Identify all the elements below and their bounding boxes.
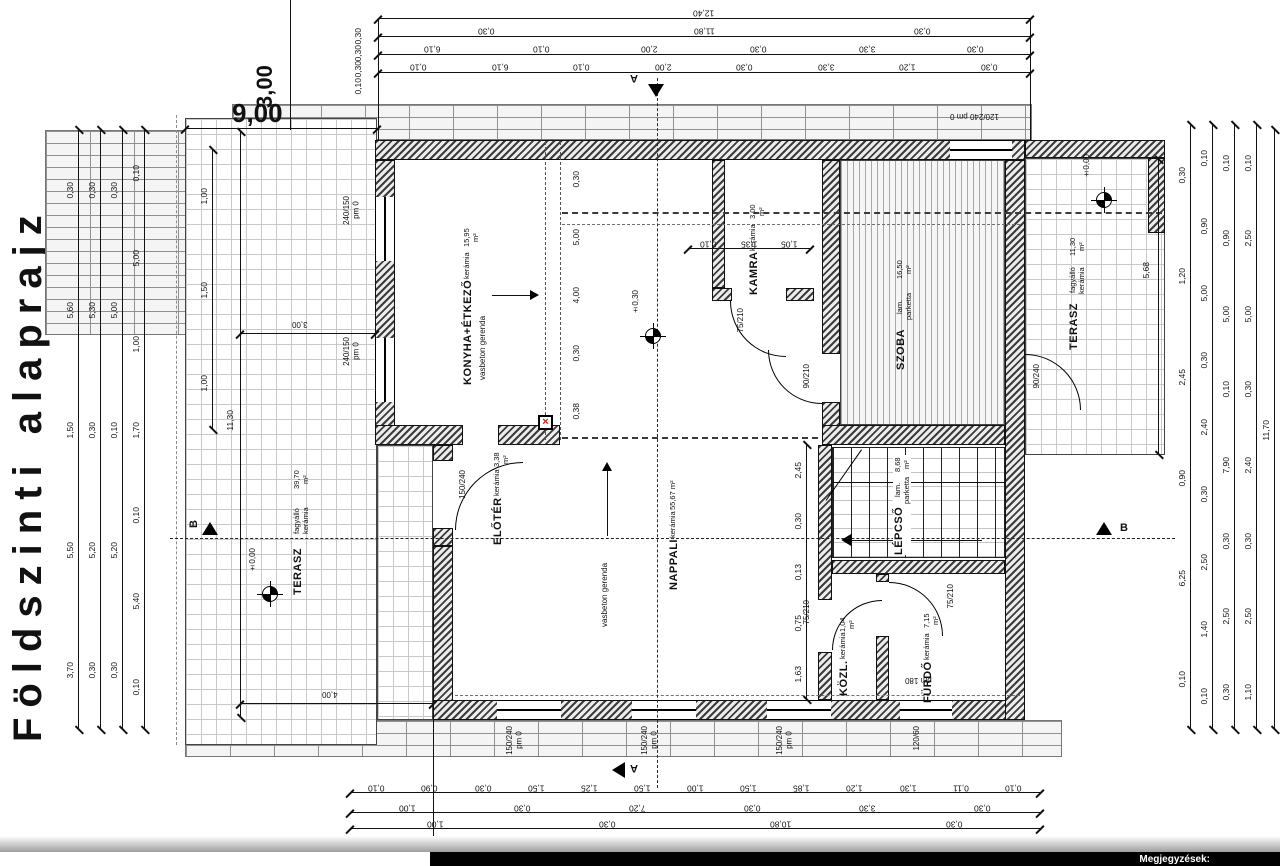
terrace-right-top-wall xyxy=(1025,140,1165,158)
dim-chain-bottom-3: 1,000,3010,800,30 xyxy=(350,816,1040,828)
dim-chain-top-corner: 0,300,300,300,10 xyxy=(352,28,364,94)
column-marker: × xyxy=(538,415,553,430)
dim-value: 0,10 xyxy=(1244,155,1253,172)
dim-value: 2,50 xyxy=(1244,608,1253,625)
dim-line-terrace-bottom xyxy=(240,703,433,704)
dim-value: 1,25 xyxy=(581,784,598,793)
dim-value: 3,30 xyxy=(818,63,835,72)
dim-chain-left-2: 0,305,300,305,200,30 xyxy=(86,130,98,730)
dim-line xyxy=(378,54,1030,55)
dim-value: 1,00 xyxy=(200,188,209,205)
window-label-top: 120/240 pm 0 xyxy=(950,112,999,121)
terrace-right-floor xyxy=(1025,158,1165,455)
dim-chain-right-3: 0,100,905,000,107,900,302,500,30 xyxy=(1220,125,1232,730)
room-label-terasz-right: TERASZ fagyálló kerámia 11,30 m² xyxy=(1068,235,1086,350)
section-marker-b-left-icon xyxy=(202,522,218,535)
dim-value: 11,80 xyxy=(694,27,715,36)
room-floor: fagyálló kerámia xyxy=(1068,259,1086,302)
dim-value: 1,05 xyxy=(781,240,798,249)
room-area: 11,30 m² xyxy=(1068,235,1086,258)
section-line-a xyxy=(657,78,658,788)
dim-value: 0,30 xyxy=(514,804,531,813)
dim-value: 12,40 xyxy=(693,9,714,18)
dim-value: 0,30 xyxy=(572,345,581,362)
dim-value: 11,70 xyxy=(1262,420,1271,441)
door-arc-szoba-left xyxy=(768,350,822,404)
room-label-furdo: FÜRDŐ kerámia 7,15 m² xyxy=(922,608,940,703)
door-label-szoba-left: 90/210 xyxy=(802,364,811,388)
room-name: KAMRA xyxy=(748,252,766,295)
dim-line-terrace-length xyxy=(240,132,241,718)
beam-arrow-head-nappali xyxy=(602,462,612,471)
dim-value: 0,30 xyxy=(736,63,753,72)
dim-value: 10,80 xyxy=(770,820,791,829)
dim-chain-right-2: 0,100,905,000,302,400,302,501,400,10 xyxy=(1198,125,1210,730)
dim-value: 5,00 xyxy=(572,229,581,246)
dim-value: 0,30 xyxy=(1244,381,1253,398)
stairs-direction-arrow xyxy=(841,534,851,547)
level-terrace-label: ±0,00 xyxy=(248,548,257,573)
dim-value: 0,13 xyxy=(794,564,803,581)
dim-value: 1,00 xyxy=(200,375,209,392)
eloter-wall-stub-top xyxy=(433,445,453,461)
dim-value: 1,35 xyxy=(741,240,758,249)
dim-value: 0,30 xyxy=(1200,352,1209,369)
overhang-dashed-2 xyxy=(562,224,1020,225)
footer-gradient xyxy=(0,836,1280,852)
room-name: ELŐTÉR xyxy=(492,497,510,545)
dim-line xyxy=(144,130,145,730)
dim-value: 0,30 xyxy=(354,28,363,45)
window-parapet: pm 0 xyxy=(352,196,362,225)
beam-dashed-line-2 xyxy=(560,142,561,440)
dim-value: 2,50 xyxy=(1244,230,1253,247)
room-name: TERASZ xyxy=(1068,303,1086,350)
dim-value: 0,30 xyxy=(572,171,581,188)
dim-value: 0,30 xyxy=(1244,533,1253,550)
room-name: LÉPCSŐ xyxy=(893,507,911,555)
dim-value: 0,90 xyxy=(1178,470,1187,487)
dim-value: 5,40 xyxy=(132,593,141,610)
room-floor: lam. parketta xyxy=(893,474,911,505)
dim-line xyxy=(100,130,101,730)
dim-value: 2,00 xyxy=(641,45,658,54)
szoba-floor xyxy=(840,160,1005,425)
dim-value: 1,50 xyxy=(740,784,757,793)
room-label-terasz-left: TERASZ fagyálló kerámia 39,70 m² xyxy=(292,465,310,595)
dim-line xyxy=(1256,125,1257,730)
eloter-wall-stub-bottom xyxy=(433,528,453,546)
dim-value: 0,30 xyxy=(1222,533,1231,550)
dim-value: 0,30 xyxy=(744,804,761,813)
dim-chain-right-1: 0,301,202,450,906,250,10 xyxy=(1176,125,1188,730)
window-label-bottom-1: 150/240 pm 0 xyxy=(505,726,524,755)
room-label-konyha: KONYHA+ÉTKEZŐ kerámia 15,95 m² xyxy=(462,225,480,385)
dim-line xyxy=(1274,130,1275,730)
extension-line xyxy=(1030,18,1031,140)
window-konyha-2 xyxy=(375,338,395,402)
room-area: 8,68 m² xyxy=(893,455,911,473)
window-parapet: pm 0 xyxy=(352,337,362,366)
dim-value: 1,00 xyxy=(687,784,704,793)
room-label-eloter: ELŐTÉR kerámia 3,38 m² xyxy=(492,450,510,545)
dim-value: 0,10 xyxy=(410,63,427,72)
window-parapet: pm 0 xyxy=(950,112,968,121)
dim-line xyxy=(1212,125,1213,730)
dim-value: 0,30 xyxy=(974,804,991,813)
dim-chain-left-4: 0,105,001,001,700,105,400,10 xyxy=(130,130,142,730)
dim-value: 1,63 xyxy=(794,666,803,683)
dim-value: 0,10 xyxy=(368,784,385,793)
room-name: TERASZ xyxy=(292,548,310,595)
window-parapet: pm 0 xyxy=(515,726,525,755)
dim-value: 5,00 xyxy=(1244,306,1253,323)
dim-value: 0,30 xyxy=(110,662,119,679)
room-floor: lam. parketta xyxy=(895,285,913,328)
room-area: 3,00 m² xyxy=(748,200,766,223)
room-floor: kerámia xyxy=(492,470,510,497)
room-area: 55,67 m² xyxy=(668,481,680,511)
dim-line xyxy=(350,812,1040,813)
level-terrace-right-label: ±0,00 xyxy=(1082,154,1091,179)
dim-value: 5,50 xyxy=(66,542,75,559)
dim-value: 5,30 xyxy=(88,302,97,319)
extension-line xyxy=(378,18,379,140)
dim-chain-right-5: 11,70 xyxy=(1260,130,1272,730)
dim-value: 7,20 xyxy=(629,804,646,813)
kozl-furdo-partition-a xyxy=(876,574,889,582)
dim-chain-top-4: 0,106,100,102,000,303,301,200,30 xyxy=(378,59,1030,71)
window-label-konyha-2: 240/150 pm 0 xyxy=(342,337,361,366)
window-top xyxy=(950,140,1012,160)
dim-value: 5,20 xyxy=(110,542,119,559)
dim-value: 5,00 xyxy=(1200,285,1209,302)
dim-value: 3,70 xyxy=(66,662,75,679)
dim-value: 1,30 xyxy=(900,784,917,793)
footer-bar: Megjegyzések: xyxy=(430,852,1280,866)
dim-value: 0,30 xyxy=(88,662,97,679)
dim-chain-top-1: 12,40 xyxy=(378,5,1030,17)
dim-line xyxy=(212,150,213,430)
dim-value: 0,10 xyxy=(132,507,141,524)
kamra-bottom-wall-a xyxy=(712,288,732,301)
dim-value: 0,10 xyxy=(132,165,141,182)
dim-value: 1,20 xyxy=(1178,268,1187,285)
dim-value: 4,00 xyxy=(572,287,581,304)
beam-arrow-line-nappali xyxy=(607,470,608,536)
level-interior-label: ±0,30 xyxy=(631,290,640,315)
szoba-left-wall-upper xyxy=(822,160,840,354)
window-label-furdo: 120/60 xyxy=(912,726,922,750)
room-name: KONYHA+ÉTKEZŐ xyxy=(462,280,480,385)
dim-line xyxy=(378,72,1030,73)
dim-top-offset: 3,00 xyxy=(252,36,278,108)
stairs-left-wall-upper xyxy=(818,445,832,600)
dim-value: 0,30 xyxy=(599,820,616,829)
dim-value: 0,90 xyxy=(1200,218,1209,235)
dim-value: 0,90 xyxy=(1222,230,1231,247)
dim-value: 0,30 xyxy=(1222,684,1231,701)
beam-label-nappali: vasbeton gerenda xyxy=(600,540,609,650)
footer-notes-label: Megjegyzések: xyxy=(1139,854,1210,865)
window-parapet: pm 0 xyxy=(785,726,795,755)
terrace-left-step-floor xyxy=(377,445,433,720)
dim-terrace-width: 3,00 xyxy=(292,320,308,329)
room-floor: kerámia xyxy=(838,633,856,660)
room-area: 16,50 m² xyxy=(895,255,913,284)
dim-line-terrace-width xyxy=(240,333,375,334)
dim-value: 0,30 xyxy=(88,422,97,439)
dim-value: 0,10 xyxy=(700,240,717,249)
dim-value: 1,50 xyxy=(528,784,545,793)
dim-value: 1,20 xyxy=(846,784,863,793)
dim-value: 2,45 xyxy=(1178,369,1187,386)
dim-value: 1,50 xyxy=(634,784,651,793)
dim-value: 0,10 xyxy=(1222,381,1231,398)
dim-line xyxy=(78,130,79,730)
floor-plan-canvas: Földszinti alaprajz 240/150 pm 0 240/150 xyxy=(0,0,1280,866)
dim-value: 1,00 xyxy=(427,820,444,829)
window-label-konyha-1: 240/150 pm 0 xyxy=(342,196,361,225)
dim-value: 1,40 xyxy=(1200,621,1209,638)
dim-line-top-width xyxy=(185,128,377,129)
section-marker-a-top-label: A xyxy=(630,72,638,84)
dim-value: 0,30 xyxy=(1200,486,1209,503)
room-area: 3,38 m² xyxy=(492,450,510,469)
dim-value: 5,00 xyxy=(1222,306,1231,323)
section-marker-b-right-icon xyxy=(1096,522,1112,535)
dim-value: 0,30 xyxy=(1178,167,1187,184)
window-label-bottom-3: 150/240 pm 0 xyxy=(775,726,794,755)
window-bottom-3 xyxy=(767,700,831,720)
room-floor: kerámia xyxy=(668,511,680,538)
dim-value: 6,10 xyxy=(424,45,441,54)
dim-value: 0,75 xyxy=(794,615,803,632)
dim-value: 0,10 xyxy=(132,679,141,696)
dim-value: 0,30 xyxy=(946,820,963,829)
window-konyha-1 xyxy=(375,197,395,261)
dim-value: 6,10 xyxy=(492,63,509,72)
dim-value: 0,10 xyxy=(1178,671,1187,688)
dim-value: 0,30 xyxy=(750,45,767,54)
level-marker-icon xyxy=(1096,192,1112,208)
window-size: 120/60 xyxy=(912,726,922,750)
section-marker-a-top-icon xyxy=(648,84,664,97)
dim-chain-nappali-right: 2,450,300,130,751,63 xyxy=(792,445,804,700)
dim-value: 1,10 xyxy=(1244,684,1253,701)
window-size: 150/240 xyxy=(505,726,515,755)
szoba-bottom-wall xyxy=(822,425,1005,445)
dim-value: 1,00 xyxy=(132,336,141,353)
room-floor: kerámia xyxy=(462,252,480,279)
overhang-dashed-3 xyxy=(562,437,818,439)
room-name: FÜRDŐ xyxy=(922,661,940,703)
dim-terrace-length: 11,30 xyxy=(226,410,235,431)
window-bottom-2 xyxy=(632,700,696,720)
room-name: NAPPALI xyxy=(668,539,680,590)
window-size: 240/150 xyxy=(342,196,352,225)
dim-value: 3,30 xyxy=(859,804,876,813)
beam-arrow-head-konyha xyxy=(530,290,539,300)
room-floor: fagyálló kerámia xyxy=(292,494,310,547)
dim-value: 2,40 xyxy=(1200,419,1209,436)
dim-value: 2,40 xyxy=(1244,457,1253,474)
dim-value: 0,30 xyxy=(88,182,97,199)
window-size: 240/150 xyxy=(342,337,352,366)
stairs-left-wall-lower xyxy=(818,652,832,700)
dim-value: 0,30 xyxy=(914,27,931,36)
level-marker-icon xyxy=(645,328,661,344)
extension-line xyxy=(433,720,434,848)
dim-line xyxy=(806,445,807,700)
dim-right-terrace-depth: 5,68 xyxy=(1142,262,1151,279)
dim-chain-bottom-1: 0,100,900,301,501,251,501,001,501,851,20… xyxy=(350,780,1040,792)
kamra-bottom-wall-b xyxy=(786,288,814,301)
dim-value: 5,20 xyxy=(88,542,97,559)
room-area: 7,15 m² xyxy=(922,608,940,633)
dim-value: 0,30 xyxy=(110,182,119,199)
dim-value: 0,10 xyxy=(1005,784,1022,793)
door-label-szoba-terrace: 90/240 xyxy=(1032,364,1041,388)
section-marker-b-left-label: B xyxy=(188,520,200,528)
room-area: 15,95 m² xyxy=(462,225,480,251)
level-marker-icon xyxy=(262,586,278,602)
dim-value: 0,30 xyxy=(478,27,495,36)
dim-value: 5,00 xyxy=(110,302,119,319)
dim-value: 5,60 xyxy=(66,302,75,319)
dim-value: 0,10 xyxy=(533,45,550,54)
dim-value: 1,00 xyxy=(399,804,416,813)
dim-value: 1,85 xyxy=(793,784,810,793)
dim-terrace-bottom: 4,00 xyxy=(322,690,338,699)
terrace-right-side-wall xyxy=(1148,158,1165,233)
dim-value: 0,10 xyxy=(110,422,119,439)
dim-value: 0,30 xyxy=(981,63,998,72)
section-marker-b-right-label: B xyxy=(1120,522,1128,534)
stairs-bottom-wall xyxy=(832,560,1005,574)
stairs-direction-line xyxy=(850,540,982,541)
stairs-landing-line xyxy=(832,482,1005,483)
dim-chain-bottom-2: 1,000,307,200,303,300,30 xyxy=(350,800,1040,812)
door-label-furdo: 75/210 xyxy=(946,584,955,608)
dim-line xyxy=(350,828,1040,829)
dim-value: 1,70 xyxy=(132,422,141,439)
dim-value: 2,50 xyxy=(1200,554,1209,571)
column-x-glyph: × xyxy=(542,417,548,428)
room-name: KÖZL. xyxy=(838,661,856,697)
dim-value: 0,10 xyxy=(354,78,363,95)
dim-chain-kamra: 0,101,351,05 xyxy=(688,236,810,248)
dim-value: 0,90 xyxy=(421,784,438,793)
dim-value: 0,30 xyxy=(66,182,75,199)
dim-value: 0,30 xyxy=(794,513,803,530)
property-line-left xyxy=(176,115,177,745)
window-size: 150/240 xyxy=(775,726,785,755)
window-furdo xyxy=(900,700,952,720)
dim-value: 0,30 xyxy=(354,45,363,62)
room-label-szoba: SZOBA lam. parketta 16,50 m² xyxy=(895,255,913,370)
room-floor: kerámia xyxy=(922,634,940,661)
dim-chain-top-3: 6,100,102,000,303,300,30 xyxy=(378,41,1030,53)
dim-value: 5,00 xyxy=(132,250,141,267)
dim-value: 0,30 xyxy=(475,784,492,793)
room-area: 39,70 m² xyxy=(292,465,310,493)
dim-value: 0,10 xyxy=(1200,688,1209,705)
outer-wall-right xyxy=(1005,160,1025,720)
outer-wall-left-lower xyxy=(433,546,453,720)
beam-dashed-line-1 xyxy=(545,142,546,440)
door-label-entrance: 150/240 xyxy=(458,470,467,499)
room-name: SZOBA xyxy=(895,329,913,370)
dim-value: 0,30 xyxy=(967,45,984,54)
dim-value: 2,50 xyxy=(1222,608,1231,625)
grid-line-top-left xyxy=(290,0,291,130)
dim-value: 7,90 xyxy=(1222,457,1231,474)
dim-chain-top-2: 0,3011,800,30 xyxy=(378,23,1030,35)
konyha-bottom-wall-a xyxy=(375,425,463,445)
dim-value: 3,30 xyxy=(859,45,876,54)
dim-chain-right-4: 0,102,505,000,302,400,302,501,10 xyxy=(1242,125,1254,730)
dim-line xyxy=(1234,125,1235,730)
section-marker-a-bottom-icon xyxy=(612,762,625,778)
dim-value: 0,38 xyxy=(572,403,581,420)
beam-arrow-line-konyha xyxy=(492,295,530,296)
dim-line xyxy=(1190,125,1191,730)
dim-chain-left-3: 0,305,000,105,200,30 xyxy=(108,130,120,730)
overhang-dashed-1 xyxy=(562,212,1162,214)
window-size: 150/240 xyxy=(640,726,650,755)
outer-wall-top xyxy=(375,140,1025,160)
dim-line-right-terrace xyxy=(1158,160,1159,455)
room-label-nappali: NAPPALI kerámia 55,67 m² xyxy=(668,460,680,590)
window-bottom-1 xyxy=(497,700,561,720)
door-label-kamra: 75/210 xyxy=(736,308,745,332)
staircase xyxy=(832,447,1005,558)
dim-value: 0,10 xyxy=(573,63,590,72)
dim-value: 1,20 xyxy=(899,63,916,72)
room-area: 1,04 m² xyxy=(838,617,856,632)
dim-value: 0,11 xyxy=(953,784,969,793)
dim-line xyxy=(122,130,123,730)
dim-chain-left-inner: 1,001,501,00 xyxy=(198,150,210,430)
dim-value: 0,10 xyxy=(1222,155,1231,172)
room-label-lepcso: LÉPCSŐ lam. parketta 8,68 m² xyxy=(893,455,911,555)
dim-value: 0,30 xyxy=(354,61,363,78)
dim-value: 6,25 xyxy=(1178,570,1187,587)
room-label-kozlekedo: KÖZL. kerámia 1,04 m² xyxy=(838,618,856,696)
dim-value: 2,45 xyxy=(794,462,803,479)
dim-value: 0,10 xyxy=(1200,150,1209,167)
dim-value: 1,50 xyxy=(66,422,75,439)
window-size: 120/240 xyxy=(970,112,999,121)
dim-chain-left-1: 0,305,601,505,503,70 xyxy=(64,130,76,730)
section-marker-a-bottom-label: A xyxy=(630,762,638,774)
dim-value: 1,50 xyxy=(200,282,209,299)
dim-chain-konyha-right: 0,305,004,000,300,38 xyxy=(570,150,582,440)
dim-value: 2,00 xyxy=(655,63,672,72)
